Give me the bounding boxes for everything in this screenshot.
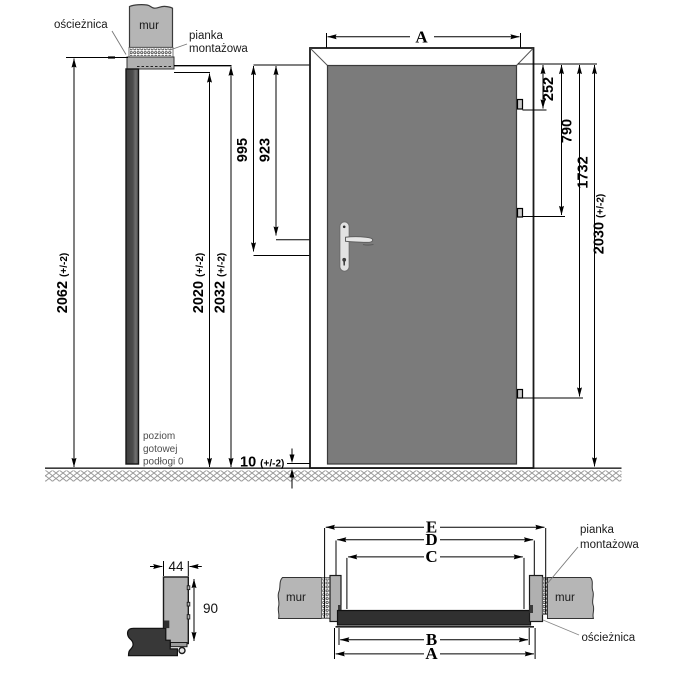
svg-text:mur: mur (286, 592, 306, 604)
svg-text:A: A (425, 644, 438, 663)
svg-text:D: D (425, 530, 437, 549)
svg-text:gotowej: gotowej (143, 444, 177, 455)
svg-text:ościeżnica: ościeżnica (54, 19, 108, 31)
svg-text:C: C (425, 547, 437, 566)
svg-text:mur: mur (139, 20, 159, 32)
svg-text:1732: 1732 (576, 156, 592, 188)
svg-text:ościeżnica: ościeżnica (582, 632, 636, 644)
svg-text:252: 252 (541, 77, 557, 101)
svg-text:podłogi 0: podłogi 0 (143, 457, 184, 468)
svg-text:A: A (415, 27, 428, 46)
svg-text:montażowa: montażowa (580, 539, 639, 551)
svg-text:montażowa: montażowa (189, 43, 248, 55)
svg-text:44: 44 (168, 559, 184, 574)
svg-text:pianka: pianka (580, 524, 614, 536)
svg-text:pianka: pianka (189, 30, 223, 42)
svg-text:923: 923 (258, 138, 274, 162)
svg-text:poziom: poziom (143, 431, 175, 442)
svg-text:mur: mur (555, 592, 575, 604)
svg-text:90: 90 (203, 601, 218, 616)
svg-text:995: 995 (235, 138, 251, 162)
svg-text:790: 790 (560, 119, 576, 143)
